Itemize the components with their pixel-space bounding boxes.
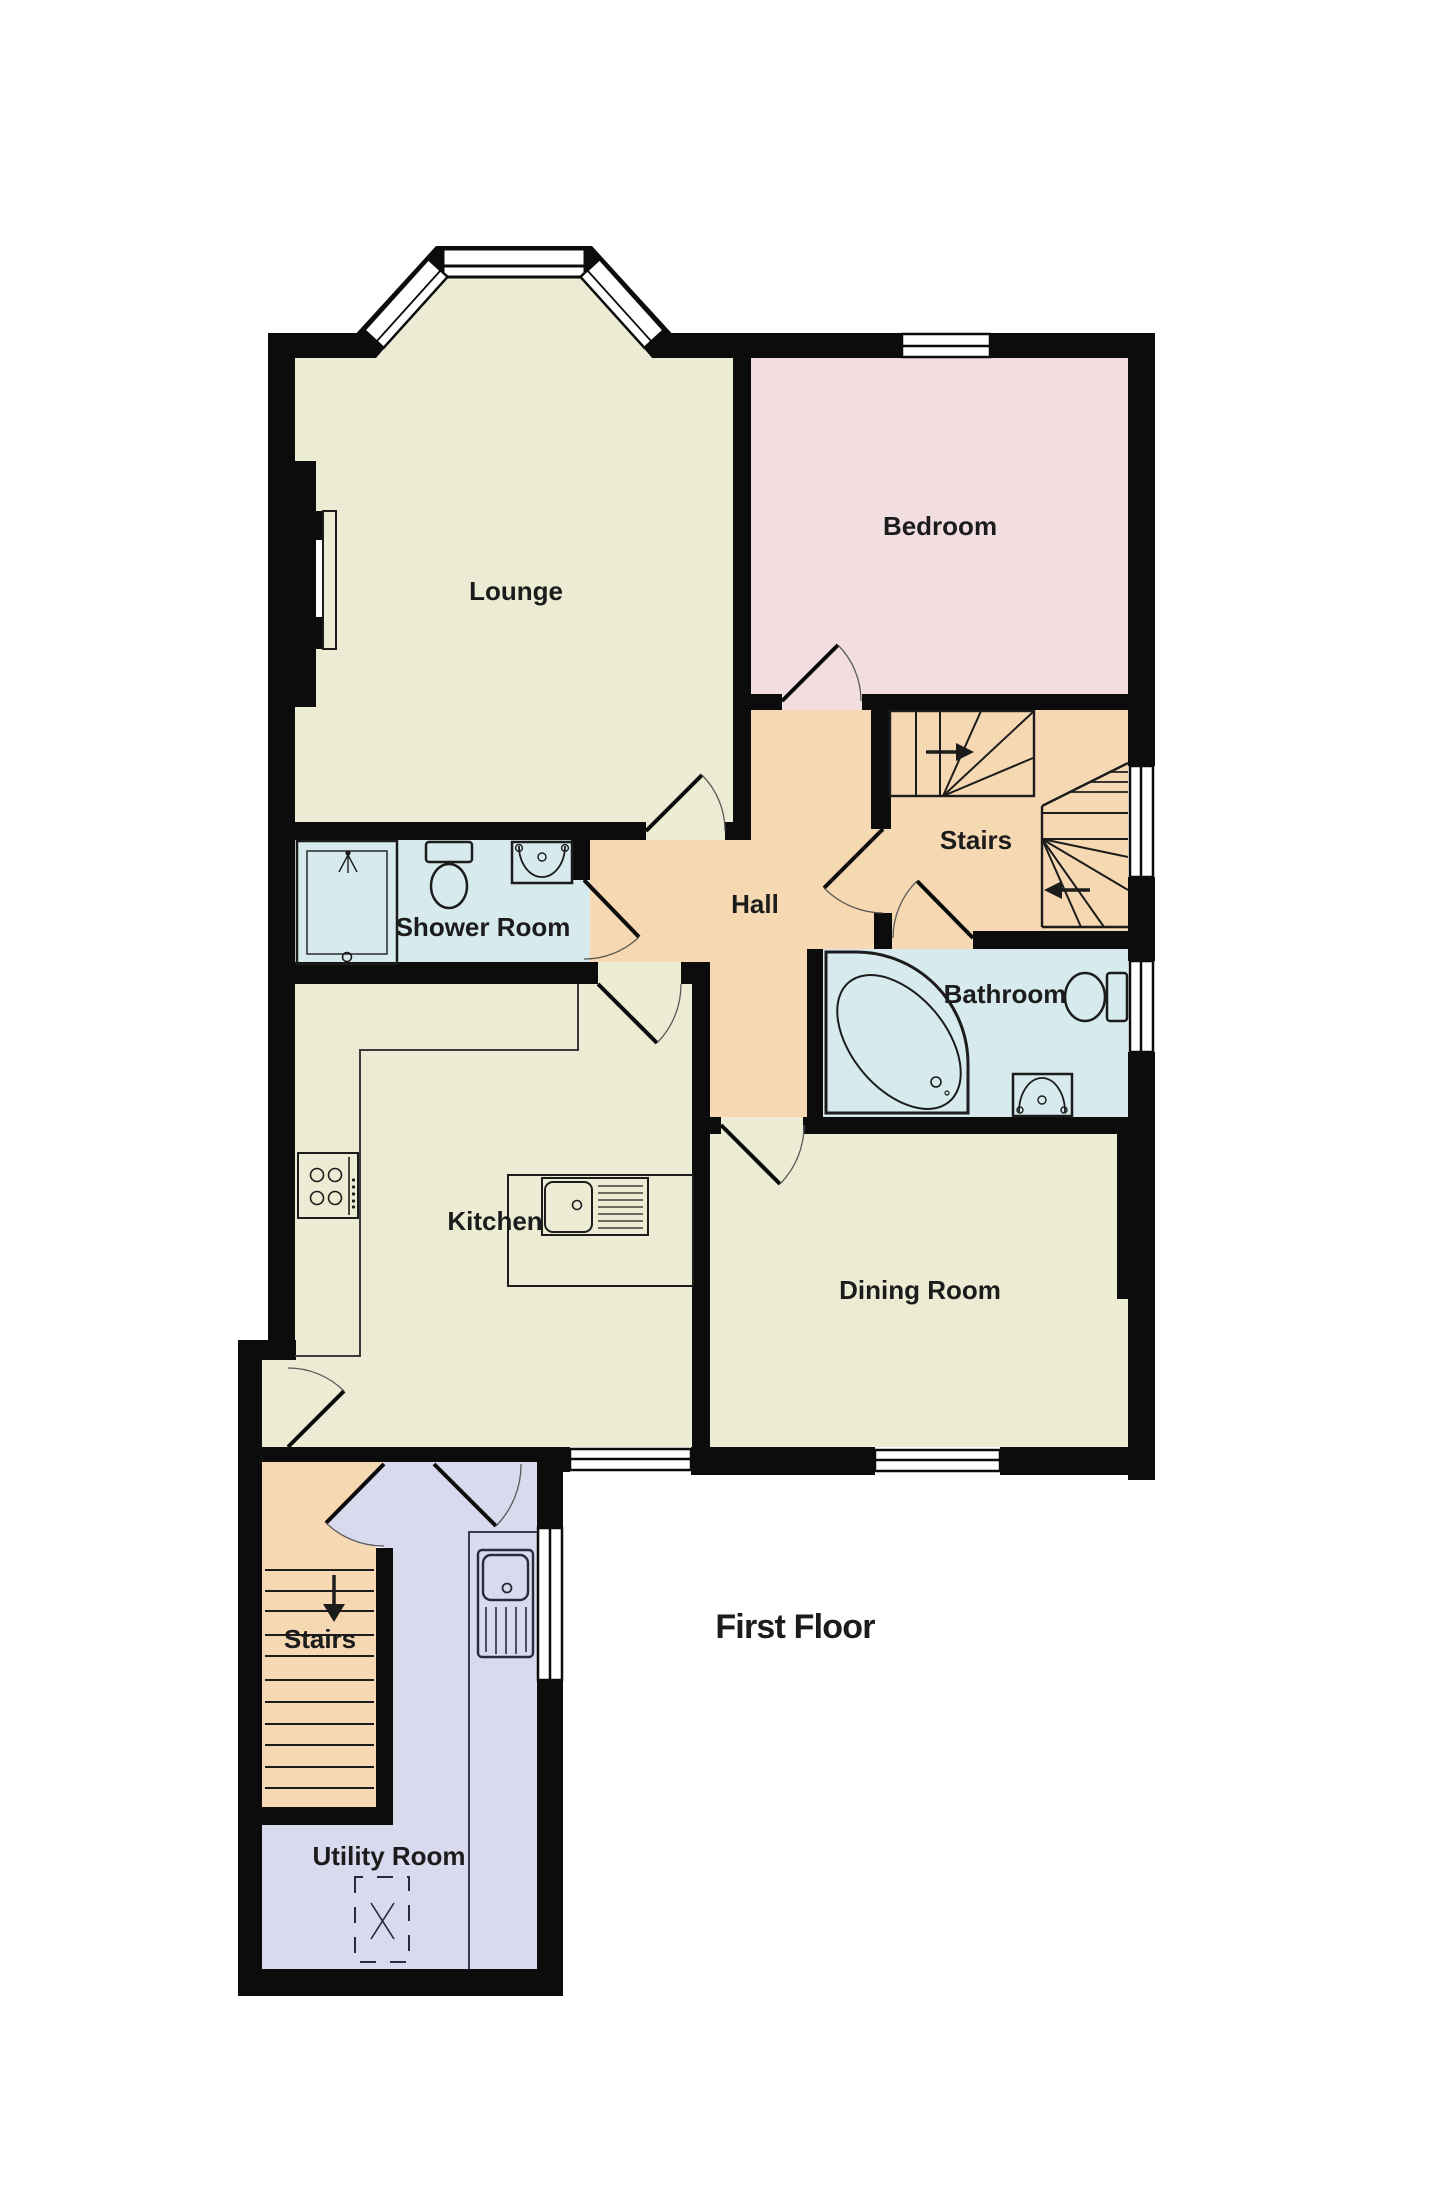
svg-text:Lounge: Lounge [469, 576, 563, 606]
svg-text:Stairs: Stairs [940, 825, 1012, 855]
svg-text:Bedroom: Bedroom [883, 511, 997, 541]
svg-text:Kitchen: Kitchen [447, 1206, 542, 1236]
svg-text:First Floor: First Floor [715, 1608, 875, 1646]
svg-text:Hall: Hall [731, 889, 779, 919]
svg-text:Stairs: Stairs [284, 1624, 356, 1654]
svg-text:Dining Room: Dining Room [839, 1275, 1001, 1305]
svg-text:Utility Room: Utility Room [312, 1841, 465, 1871]
svg-text:Shower Room: Shower Room [396, 912, 571, 942]
svg-text:Bathroom: Bathroom [944, 979, 1067, 1009]
